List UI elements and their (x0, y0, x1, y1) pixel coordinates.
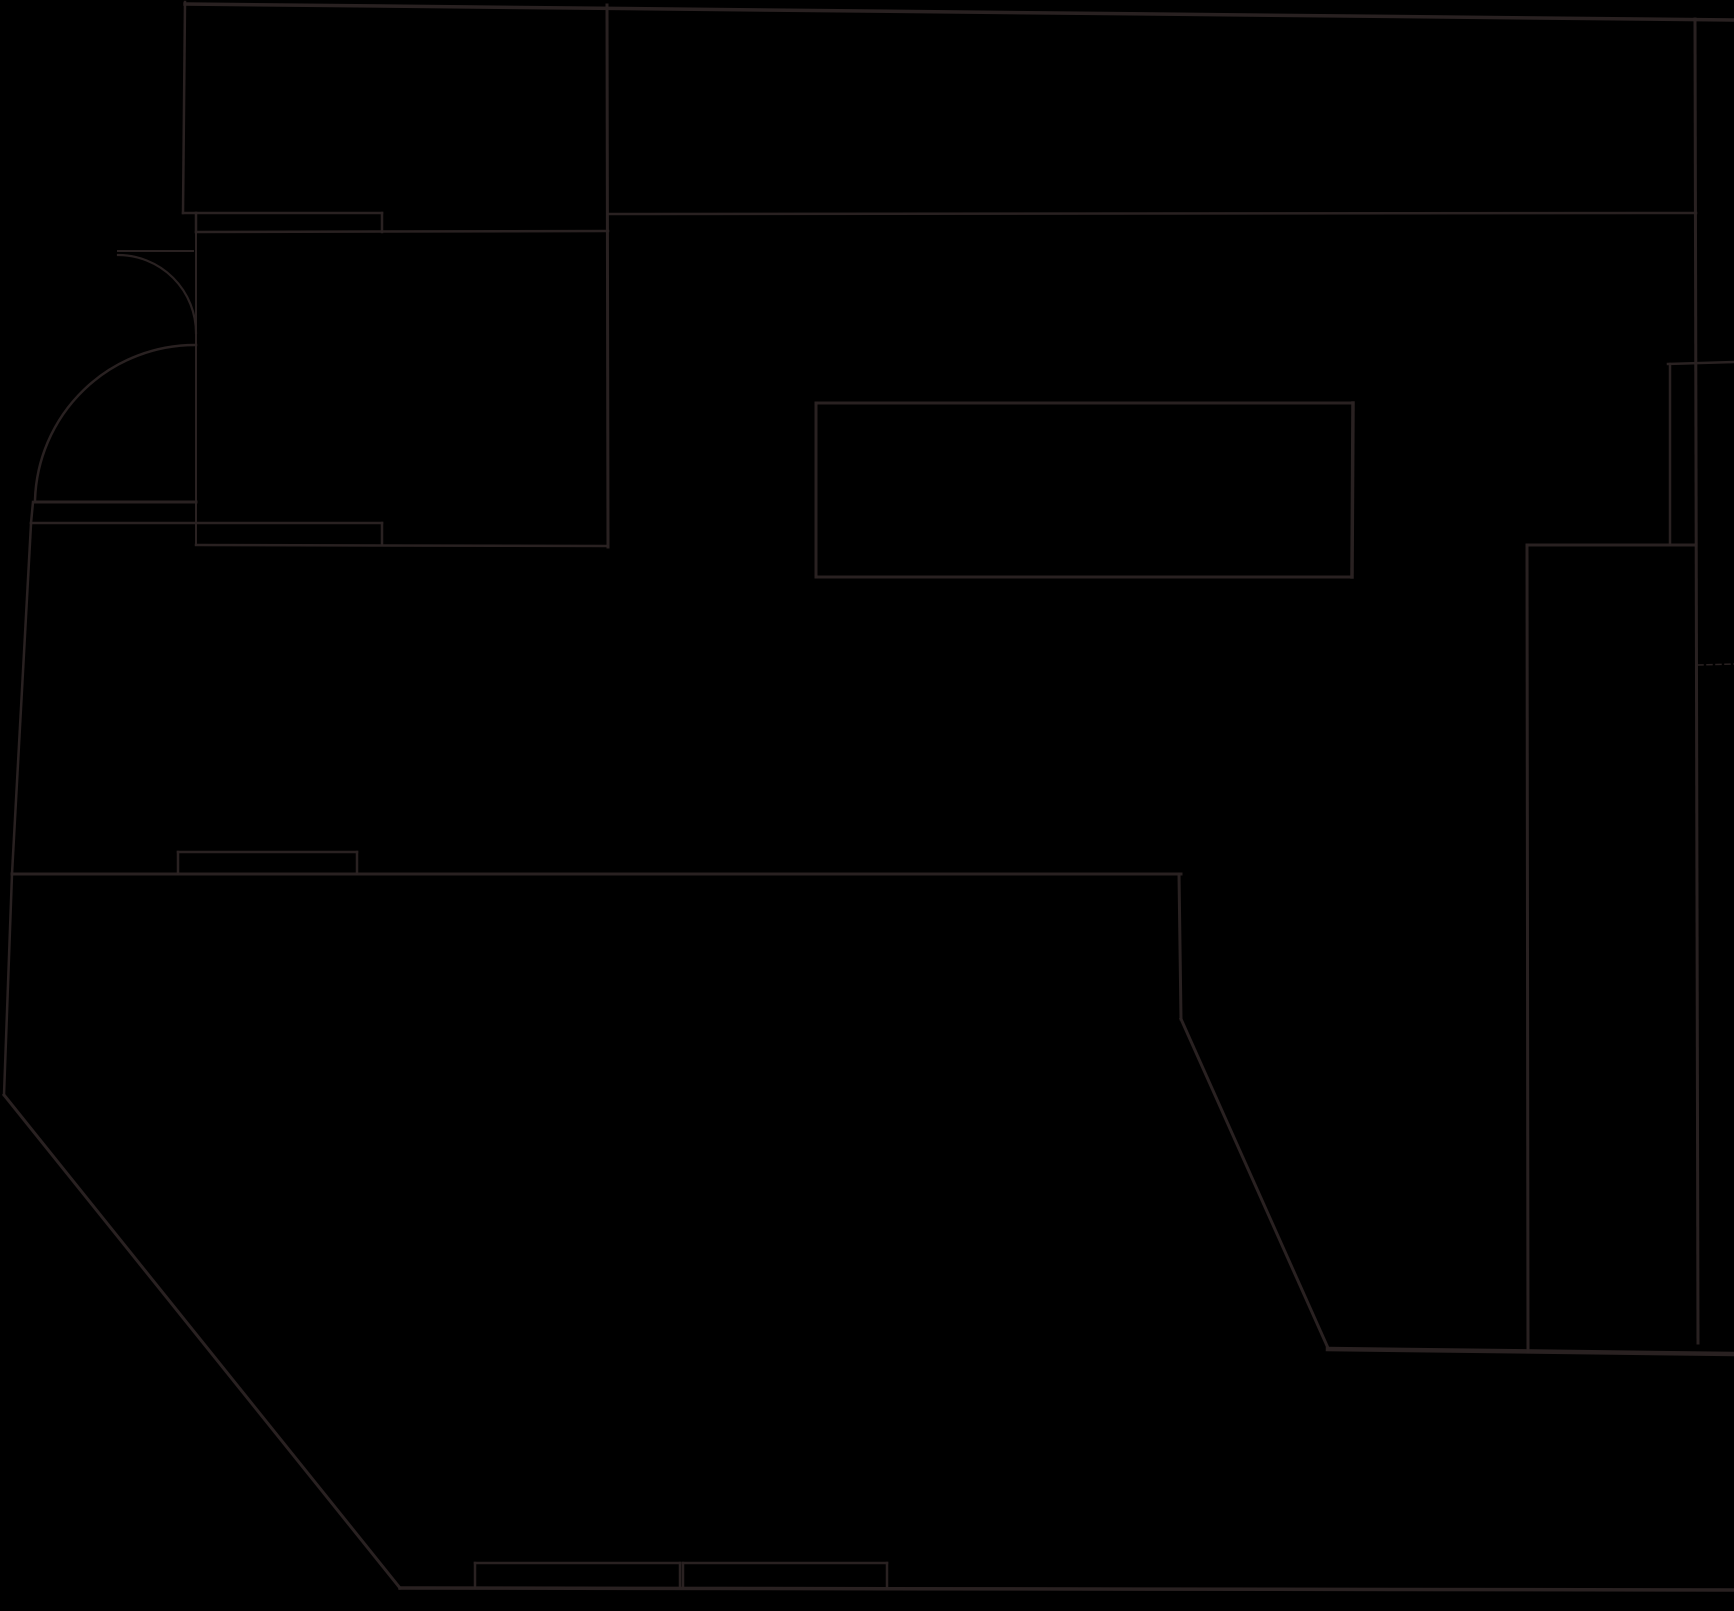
wall-left-outer-wall-low (4, 874, 12, 1095)
wall-wall-y213-right (608, 213, 1696, 214)
wall-right-room-left (1527, 545, 1528, 1352)
floor-plan-page (0, 0, 1734, 1611)
wall-bottom-wall (400, 1588, 1734, 1590)
wall-right-outer-vertical-1696 (1695, 19, 1698, 1343)
wall-southwest-diagonal (4, 1095, 400, 1588)
wall-right-strip-top (1668, 362, 1734, 364)
wall-southeast-diagonal (1181, 1019, 1328, 1348)
door-swing-lower (35, 345, 196, 500)
wall-upper-left-room-left-wall (183, 2, 185, 213)
wall-left-outer-wall-mid (12, 524, 31, 874)
wall-vertical-607 (607, 5, 608, 547)
wall-center-rect-right (1352, 403, 1353, 577)
wall-wall-y231 (196, 231, 608, 232)
floor-plan-canvas (0, 0, 1734, 1611)
door-swing-arcs-group (35, 255, 196, 500)
wall-entry-left-vertical (31, 502, 33, 523)
door-swing-upper (118, 255, 196, 333)
walls-group (4, 2, 1734, 1590)
wall-lower-right-horizontal-y1352 (1328, 1349, 1734, 1354)
wall-vertical-1181 (1179, 874, 1181, 1019)
wall-top-edge (185, 4, 1734, 20)
wall-wall-y545 (196, 545, 608, 546)
dashed-right-dashed-tick (1698, 664, 1734, 665)
